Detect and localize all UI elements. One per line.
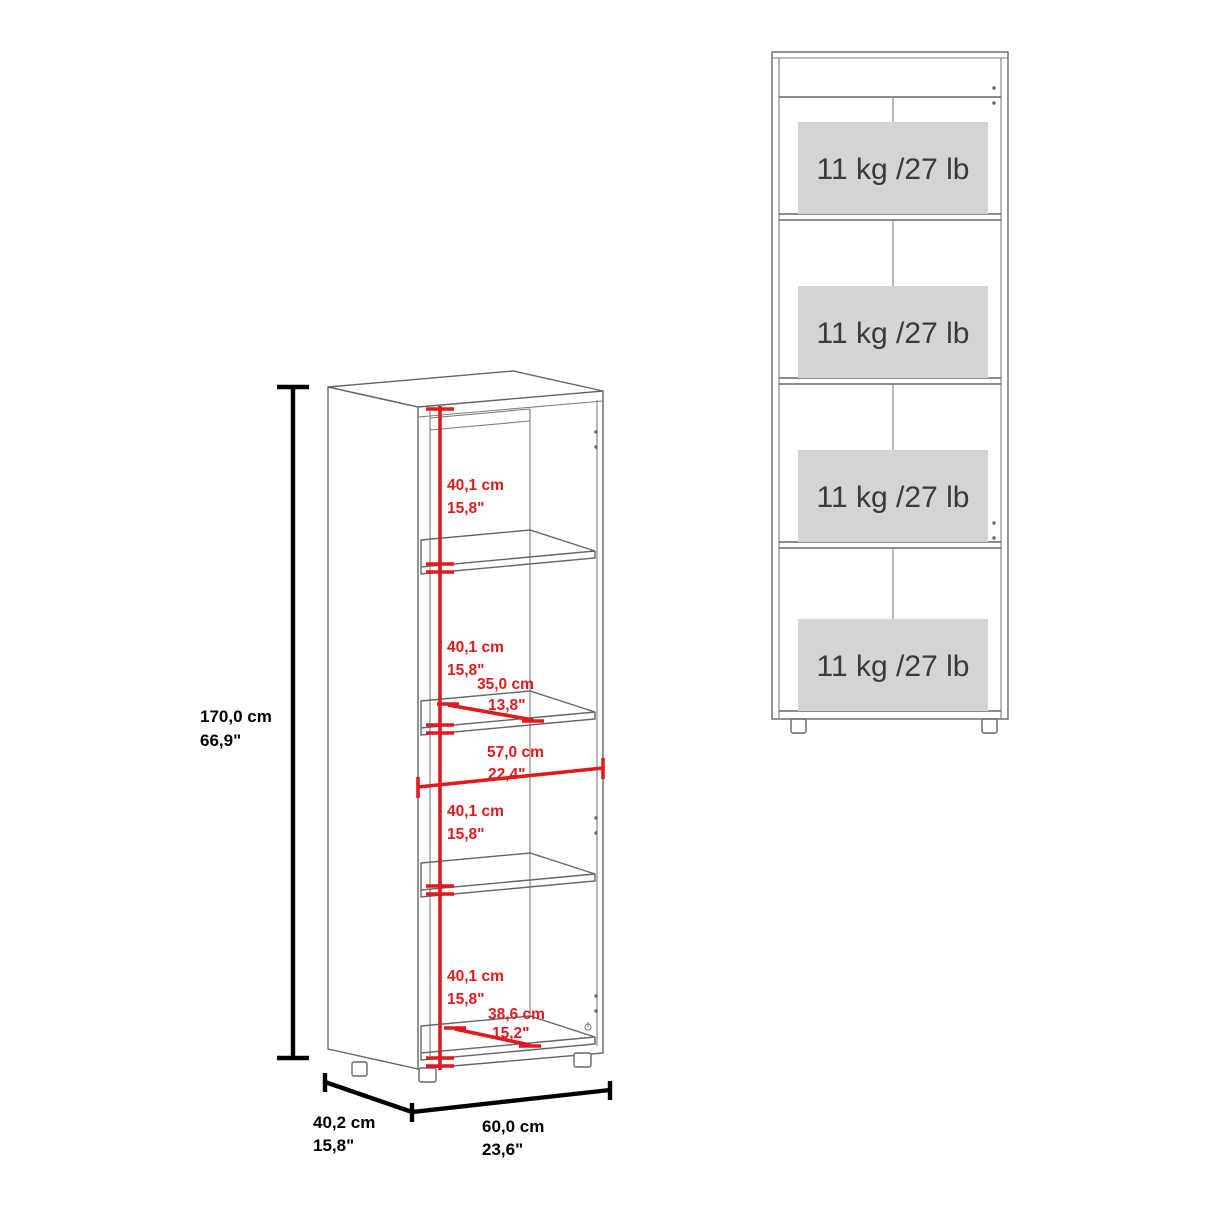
height-in-label: 66,9" xyxy=(200,731,241,750)
comp4-cm-label: 40,1 cm xyxy=(447,968,504,985)
front-view-feet xyxy=(791,719,997,733)
capacity-label-3: 11 kg /27 lb xyxy=(817,481,970,514)
shelf-1 xyxy=(421,530,595,574)
cabinet-left-side-panel xyxy=(328,387,418,1069)
capacity-label-4: 11 kg /27 lb xyxy=(817,650,970,683)
height-dimension-line xyxy=(277,387,309,1058)
depth-in-label: 15,8" xyxy=(313,1136,354,1155)
foot-front-right xyxy=(574,1053,591,1067)
shelf-3 xyxy=(421,853,595,897)
floor-depth-in-label: 15,2" xyxy=(492,1025,530,1042)
black-dimension-lines xyxy=(277,387,610,1122)
cabinet-outline xyxy=(328,371,603,1069)
capacity-label-1: 11 kg /27 lb xyxy=(817,153,970,186)
capacity-label-2: 11 kg /27 lb xyxy=(817,317,970,350)
red-dimension-lines xyxy=(418,406,603,1070)
foot-back-left xyxy=(352,1062,367,1076)
inner-width-in-label: 22,4" xyxy=(488,766,526,783)
shelf-pin-holes-front xyxy=(992,86,995,539)
height-cm-label: 170,0 cm xyxy=(200,707,272,726)
depth-cm-label: 40,2 cm xyxy=(313,1113,375,1132)
shelf-depth-cm-label: 35,0 cm xyxy=(477,676,534,693)
comp4-in-label: 15,8" xyxy=(447,991,485,1008)
isometric-view: 40,1 cm 15,8" 40,1 cm 15,8" 35,0 cm 13,8… xyxy=(200,371,610,1159)
shelf-2-front-line xyxy=(779,378,1001,384)
width-cm-label: 60,0 cm xyxy=(482,1117,544,1136)
shelf-depth-in-label: 13,8" xyxy=(488,697,526,714)
comp3-cm-label: 40,1 cm xyxy=(447,803,504,820)
cabinet-front-face xyxy=(418,391,603,1069)
diagram-page: 40,1 cm 15,8" 40,1 cm 15,8" 35,0 cm 13,8… xyxy=(0,0,1214,1214)
dimension-diagram-svg: 40,1 cm 15,8" 40,1 cm 15,8" 35,0 cm 13,8… xyxy=(0,0,1214,1214)
comp2-cm-label: 40,1 cm xyxy=(447,639,504,656)
cabinet-top-face xyxy=(328,371,603,407)
comp3-in-label: 15,8" xyxy=(447,826,485,843)
comp1-cm-label: 40,1 cm xyxy=(447,477,504,494)
inner-width-cm-label: 57,0 cm xyxy=(487,744,544,761)
width-in-label: 23,6" xyxy=(482,1140,523,1159)
floor-depth-cm-label: 38,6 cm xyxy=(488,1006,545,1023)
foot-front-left xyxy=(419,1068,436,1082)
comp1-in-label: 15,8" xyxy=(447,500,485,517)
front-foot-left xyxy=(791,719,806,733)
shelf-1-front-line xyxy=(779,214,1001,220)
shelf-3-front-line xyxy=(779,542,1001,548)
shelf-pin-holes-iso xyxy=(585,430,598,1030)
front-view: 11 kg /27 lb 11 kg /27 lb 11 kg /27 lb 1… xyxy=(772,52,1008,733)
front-foot-right xyxy=(982,719,997,733)
